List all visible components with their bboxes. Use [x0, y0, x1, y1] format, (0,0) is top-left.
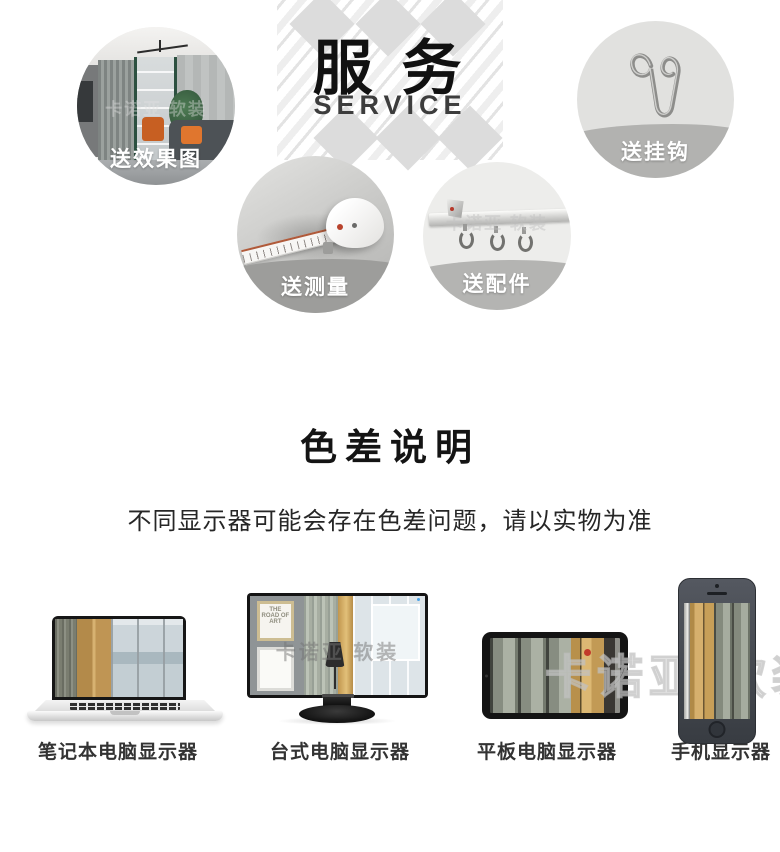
- window-city-view: [111, 619, 183, 697]
- curtain-fabric-gold: [77, 619, 112, 697]
- laptop-screen-content: [55, 619, 183, 697]
- curtain-hook-icon: [623, 43, 689, 135]
- watermark: 卡诺亚 软装: [77, 95, 235, 120]
- product-detail-page: 服 务 SERVICE 卡诺亚 软装 送效果图 送挂钩: [0, 0, 780, 852]
- laptop-screen: [52, 616, 186, 700]
- curtain-fabric-gray: [55, 619, 77, 697]
- service-circle-parts: 卡诺亚 软装 送配件: [423, 162, 571, 310]
- curtain-fabric-gray: [714, 603, 750, 719]
- laptop-notch: [110, 711, 140, 715]
- device-label-laptop: 笔记本电脑显示器: [38, 737, 188, 764]
- color-note-description: 不同显示器可能会存在色差问题，请以实物为准: [0, 501, 780, 536]
- service-label-parts: 送配件: [423, 268, 571, 298]
- monitor-screen-content: THE ROAD OF ART 卡诺亚 软装: [250, 596, 425, 695]
- watermark: 卡诺亚 软装: [250, 636, 425, 665]
- room-orange-pillow: [181, 126, 202, 144]
- laptop-mockup: [33, 612, 217, 724]
- power-led: [417, 598, 420, 601]
- phone-screen-content: [684, 603, 750, 719]
- device-label-desktop: 台式电脑显示器: [265, 737, 415, 764]
- service-circle-hooks: 送挂钩: [577, 21, 734, 178]
- camera-icon: [715, 584, 719, 588]
- phone-mockup: [678, 578, 756, 744]
- tape-clip: [323, 242, 333, 254]
- curtain-fabric-gold: [690, 603, 714, 719]
- room-orange-chair: [142, 117, 164, 141]
- laptop-keyboard: [70, 702, 180, 710]
- service-circle-measure: 送测量: [237, 156, 394, 313]
- service-label-effect: 送效果图: [77, 143, 235, 173]
- camera-icon: [485, 674, 488, 677]
- service-label-hooks: 送挂钩: [577, 136, 734, 166]
- service-header: 服 务 SERVICE: [283, 4, 497, 154]
- service-subtitle: SERVICE: [283, 90, 497, 121]
- ceiling-lamp-stem: [159, 40, 161, 52]
- curtain-ring: [490, 232, 505, 251]
- monitor-shadow: [277, 717, 397, 725]
- home-button-icon: [709, 721, 726, 738]
- curtain-ring: [518, 233, 533, 252]
- tape-measure-body: [326, 198, 384, 248]
- monitor-bezel: THE ROAD OF ART 卡诺亚 软装: [247, 593, 428, 698]
- service-circle-effect-image: 卡诺亚 软装 送效果图: [77, 27, 235, 185]
- desktop-monitor-mockup: THE ROAD OF ART 卡诺亚 软装: [247, 593, 428, 725]
- laptop-base: [27, 711, 223, 721]
- service-label-measure: 送测量: [237, 271, 394, 301]
- wall-art-frame: THE ROAD OF ART: [257, 601, 294, 641]
- watermark: 卡诺亚 软装: [423, 209, 571, 234]
- device-label-tablet: 平板电脑显示器: [472, 737, 622, 764]
- lamp-stem: [334, 667, 336, 689]
- color-note-title: 色差说明: [0, 417, 780, 471]
- speaker-icon: [707, 592, 727, 595]
